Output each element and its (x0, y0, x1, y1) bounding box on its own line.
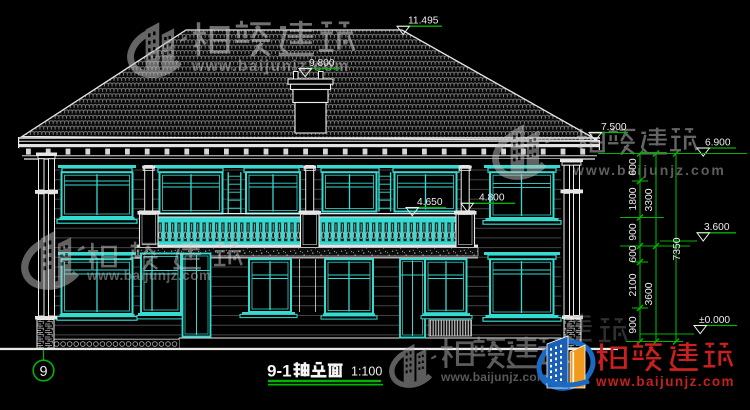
svg-text:9-1: 9-1 (267, 362, 292, 381)
svg-text:6.900: 6.900 (705, 137, 731, 148)
svg-text:9.800: 9.800 (309, 58, 335, 69)
svg-text:9: 9 (39, 364, 47, 380)
svg-text:600: 600 (628, 245, 639, 262)
svg-text:4.800: 4.800 (479, 193, 505, 204)
svg-text:www.baijunjz.com: www.baijunjz.com (572, 162, 726, 178)
svg-text:1800: 1800 (628, 187, 639, 210)
svg-text:600: 600 (628, 158, 639, 175)
svg-text:4.650: 4.650 (417, 197, 443, 208)
svg-text:11.495: 11.495 (408, 16, 439, 27)
svg-text:www.baijunjz.com: www.baijunjz.com (440, 370, 548, 384)
svg-text:1:100: 1:100 (351, 365, 382, 379)
svg-text:3300: 3300 (644, 188, 655, 211)
svg-text:3600: 3600 (644, 282, 655, 305)
svg-text:www.baijunjz.com: www.baijunjz.com (86, 268, 212, 283)
svg-text:3.600: 3.600 (704, 222, 730, 233)
svg-text:7.500: 7.500 (601, 122, 627, 133)
svg-text:7350: 7350 (672, 237, 683, 260)
svg-text:900: 900 (628, 316, 639, 333)
svg-text:900: 900 (628, 223, 639, 240)
svg-text:±0.000: ±0.000 (699, 315, 730, 326)
svg-text:2100: 2100 (628, 273, 639, 296)
svg-text:www.baijunjz.com: www.baijunjz.com (595, 374, 735, 389)
